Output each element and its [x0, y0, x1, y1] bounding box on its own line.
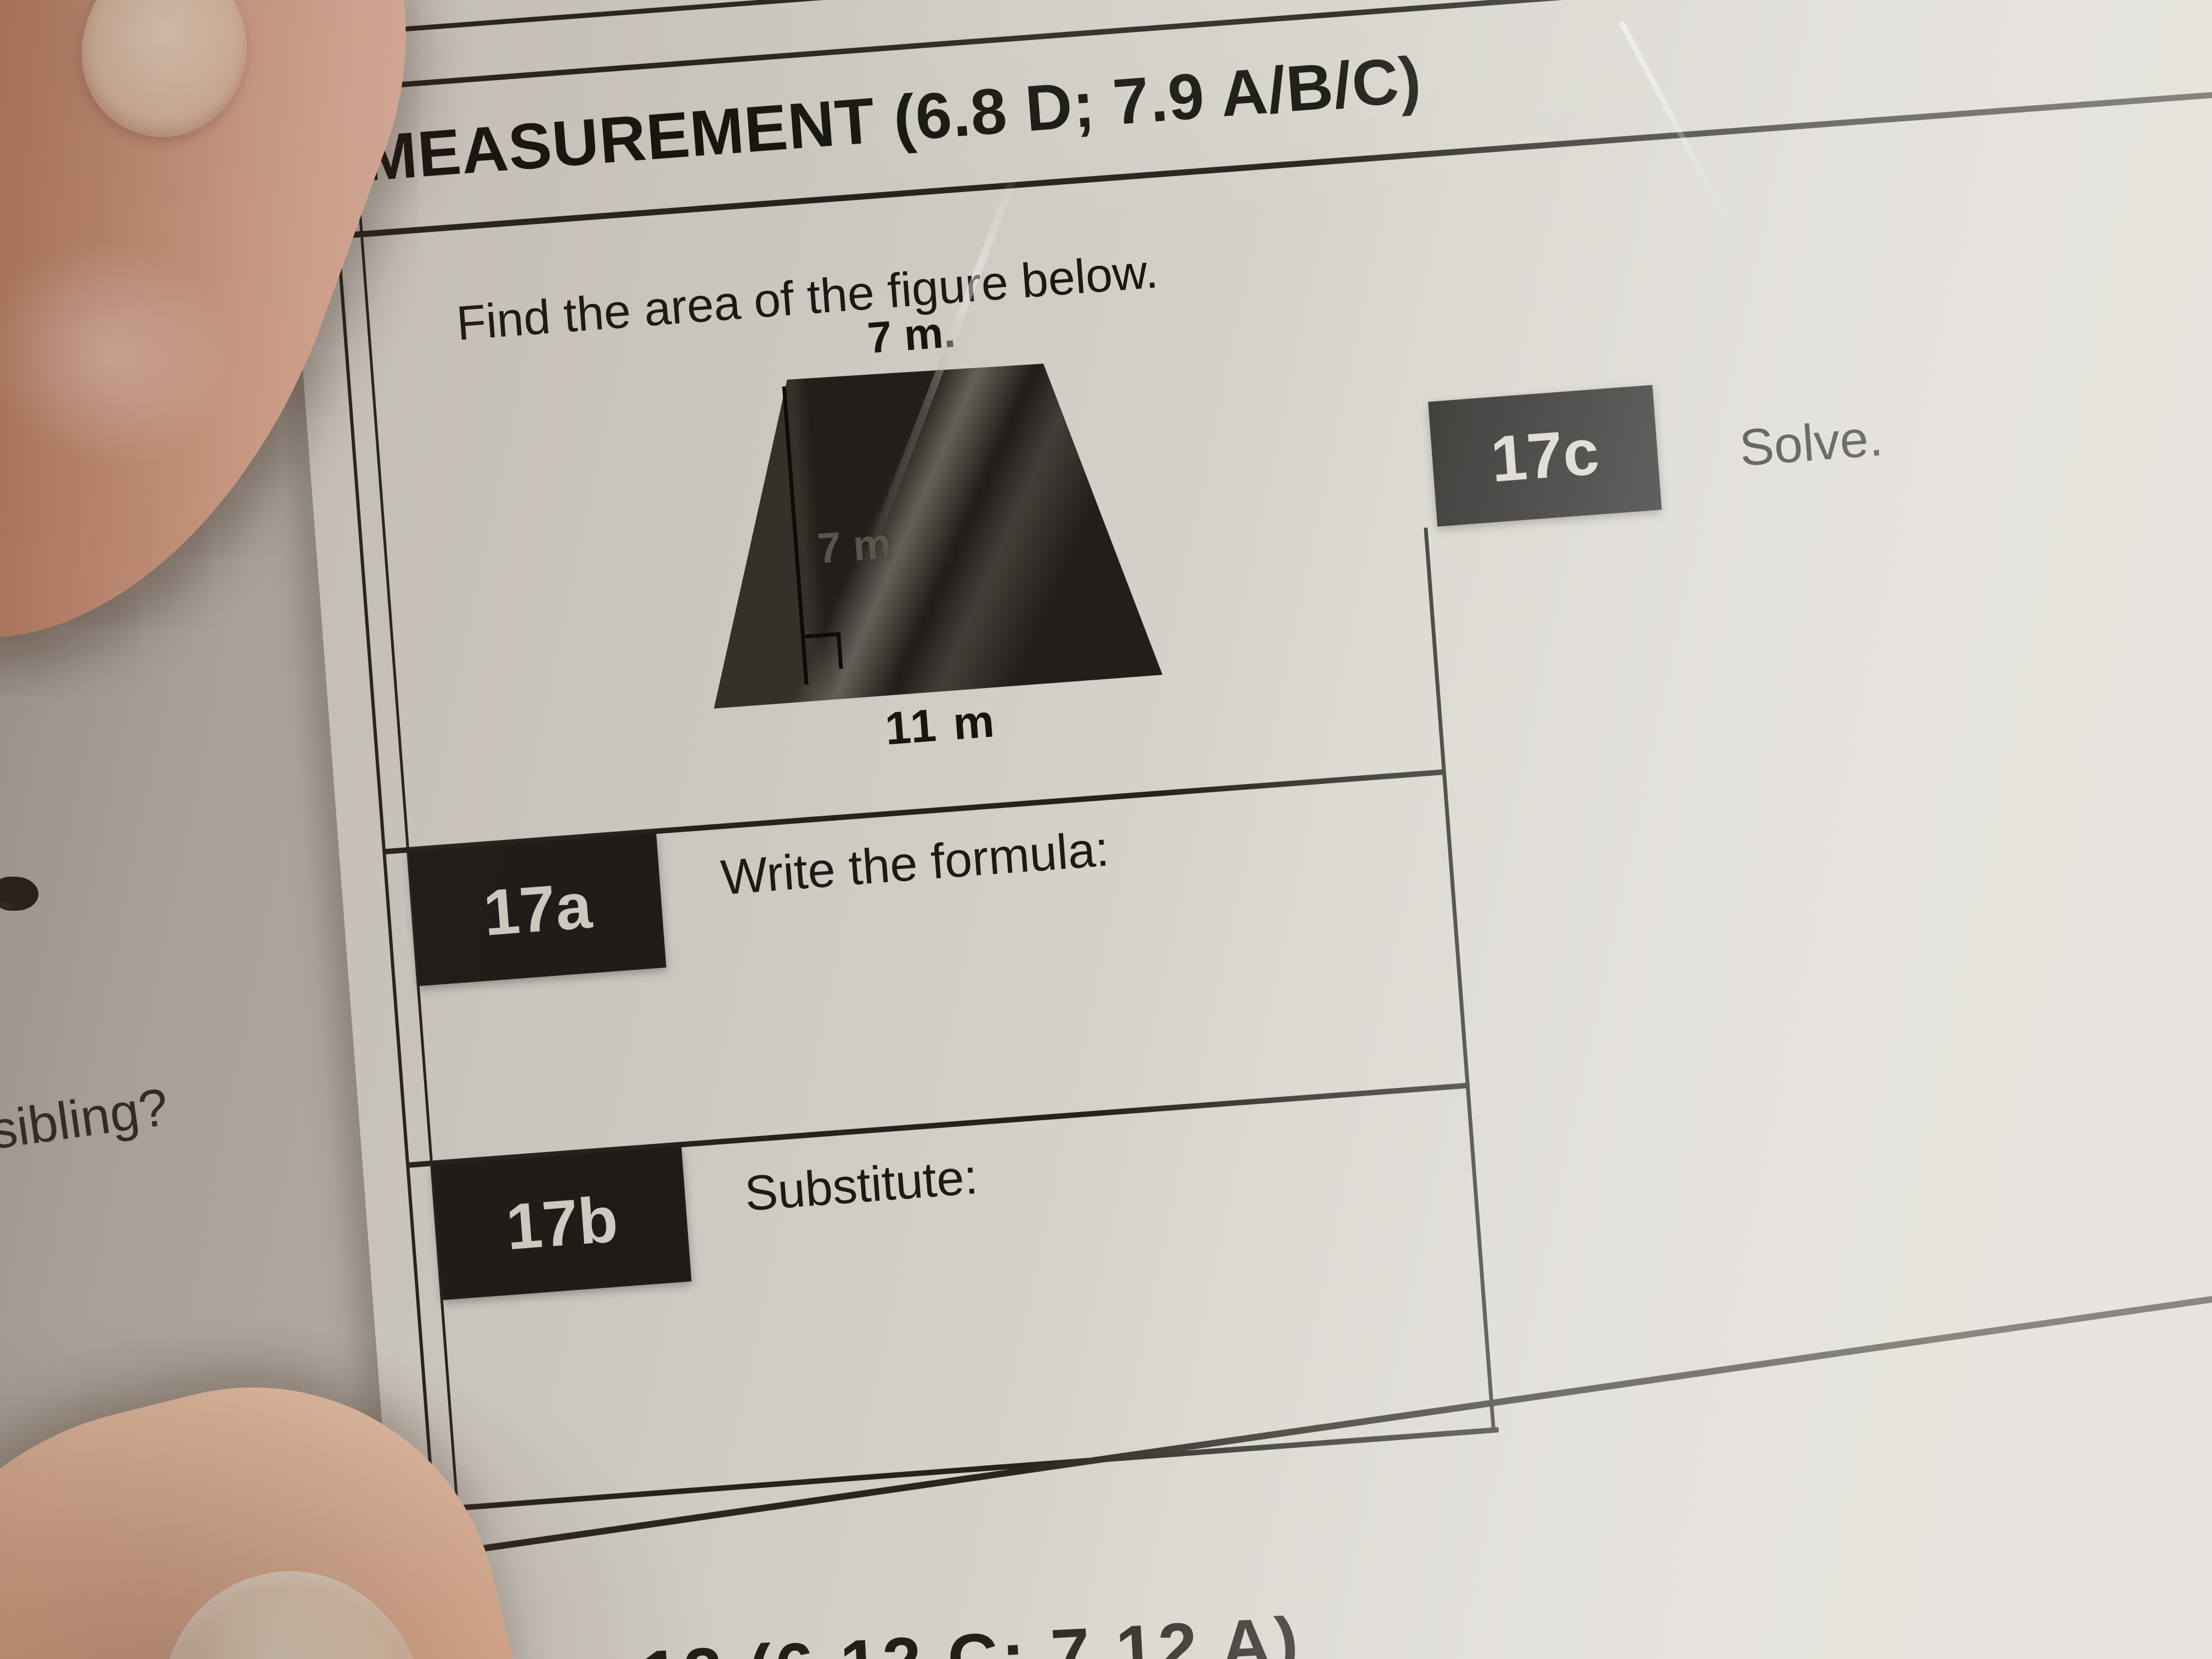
part-badge-17c: 17c	[1428, 385, 1662, 527]
worksheet-paper	[252, 0, 2212, 1659]
photo-of-worksheet: L sibling? MEASUREMENT (6.8 D; 7.9 A/B/C…	[0, 0, 2212, 1659]
prompt-solve: Solve.	[1737, 408, 1885, 478]
part-badge-17b: 17b	[432, 1146, 691, 1300]
part-badge-17a: 17a	[409, 833, 666, 986]
right-angle-mark	[805, 632, 843, 672]
